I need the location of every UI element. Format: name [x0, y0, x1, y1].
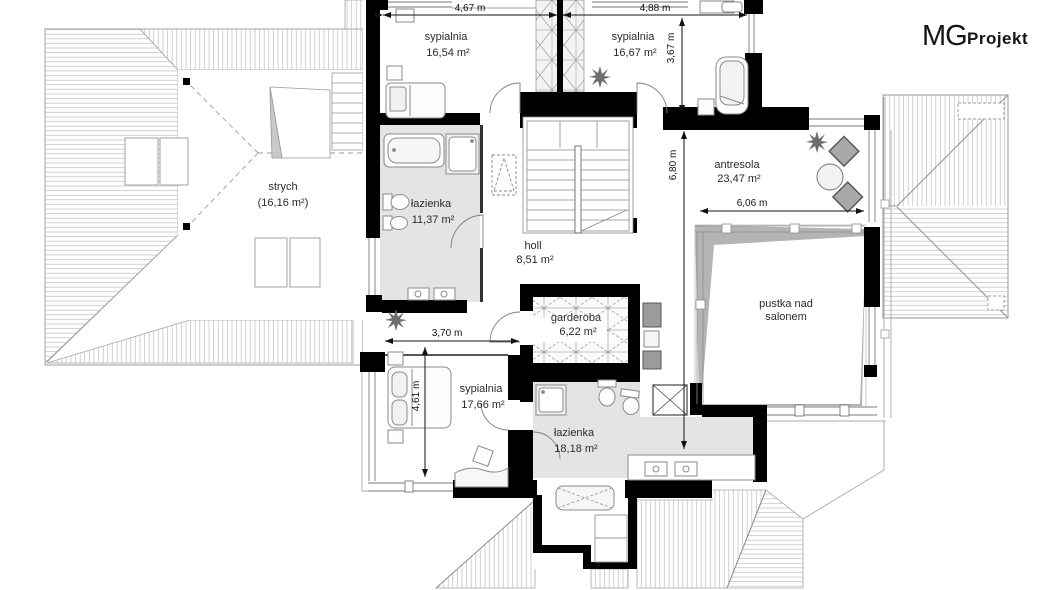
left-roof: [45, 0, 379, 365]
staircase: [523, 117, 633, 233]
room-label-pustka-1: pustka nad: [759, 298, 813, 310]
room-area-strych: (16,16 m²): [258, 197, 309, 209]
right-roof: [883, 95, 1008, 318]
dim-4-67: 4,67 m: [455, 3, 486, 14]
duct-shaft: [653, 385, 687, 415]
room-label-holl: holl: [524, 240, 541, 252]
room-label-lazienka1: łazienka: [411, 198, 452, 210]
room-area-sypialnia2: 16,67 m²: [613, 47, 657, 59]
dim-4-61: 4,61 m: [411, 381, 422, 412]
room-label-pustka-2: salonem: [765, 311, 807, 323]
roof-opening-outline: [988, 296, 1004, 310]
plant-icon: [385, 309, 407, 331]
room-label-sypialnia3: sypialnia: [460, 383, 504, 395]
roof-post: [183, 223, 190, 230]
room-label-antresola: antresola: [714, 159, 760, 171]
logo-projekt-text: Projekt: [967, 29, 1028, 48]
dim-6-06: 6,06 m: [737, 198, 768, 209]
room-area-antresola: 23,47 m²: [717, 173, 761, 185]
room-label-strych: strych: [268, 181, 297, 193]
logo-mg-text: MG: [922, 20, 967, 52]
mg-projekt-logo: MG Projekt: [922, 20, 1028, 52]
dim-4-88: 4,88 m: [640, 3, 671, 14]
room-area-garderoba: 6,22 m²: [559, 326, 597, 338]
floor-plan-page: sypialnia 16,54 m² sypialnia 16,67 m² st…: [0, 0, 1060, 590]
plant-icon: [589, 66, 611, 88]
room-label-lazienka2: łazienka: [554, 427, 595, 439]
chimney-outline: [958, 103, 1004, 119]
plant-icon: [806, 131, 828, 153]
room-area-sypialnia3: 17,66 m²: [461, 399, 505, 411]
dim-3-70: 3,70 m: [432, 328, 463, 339]
floor-plan-drawing: sypialnia 16,54 m² sypialnia 16,67 m² st…: [0, 0, 1060, 590]
dim-6-80: 6,80 m: [668, 150, 679, 181]
room-area-lazienka1: 11,37 m²: [412, 214, 455, 226]
dim-3-67: 3,67 m: [666, 33, 677, 64]
room-area-holl: 8,51 m²: [516, 254, 554, 266]
room-area-sypialnia1: 16,54 m²: [426, 47, 470, 59]
roof-post: [183, 78, 190, 85]
room-label-sypialnia1: sypialnia: [425, 31, 469, 43]
room-area-lazienka2: 18,18 m²: [554, 443, 598, 455]
room-label-sypialnia2: sypialnia: [612, 31, 656, 43]
room-label-garderoba: garderoba: [551, 312, 602, 324]
antresola-cabinets: [643, 303, 661, 369]
roof-window-pair-left: [125, 138, 188, 185]
